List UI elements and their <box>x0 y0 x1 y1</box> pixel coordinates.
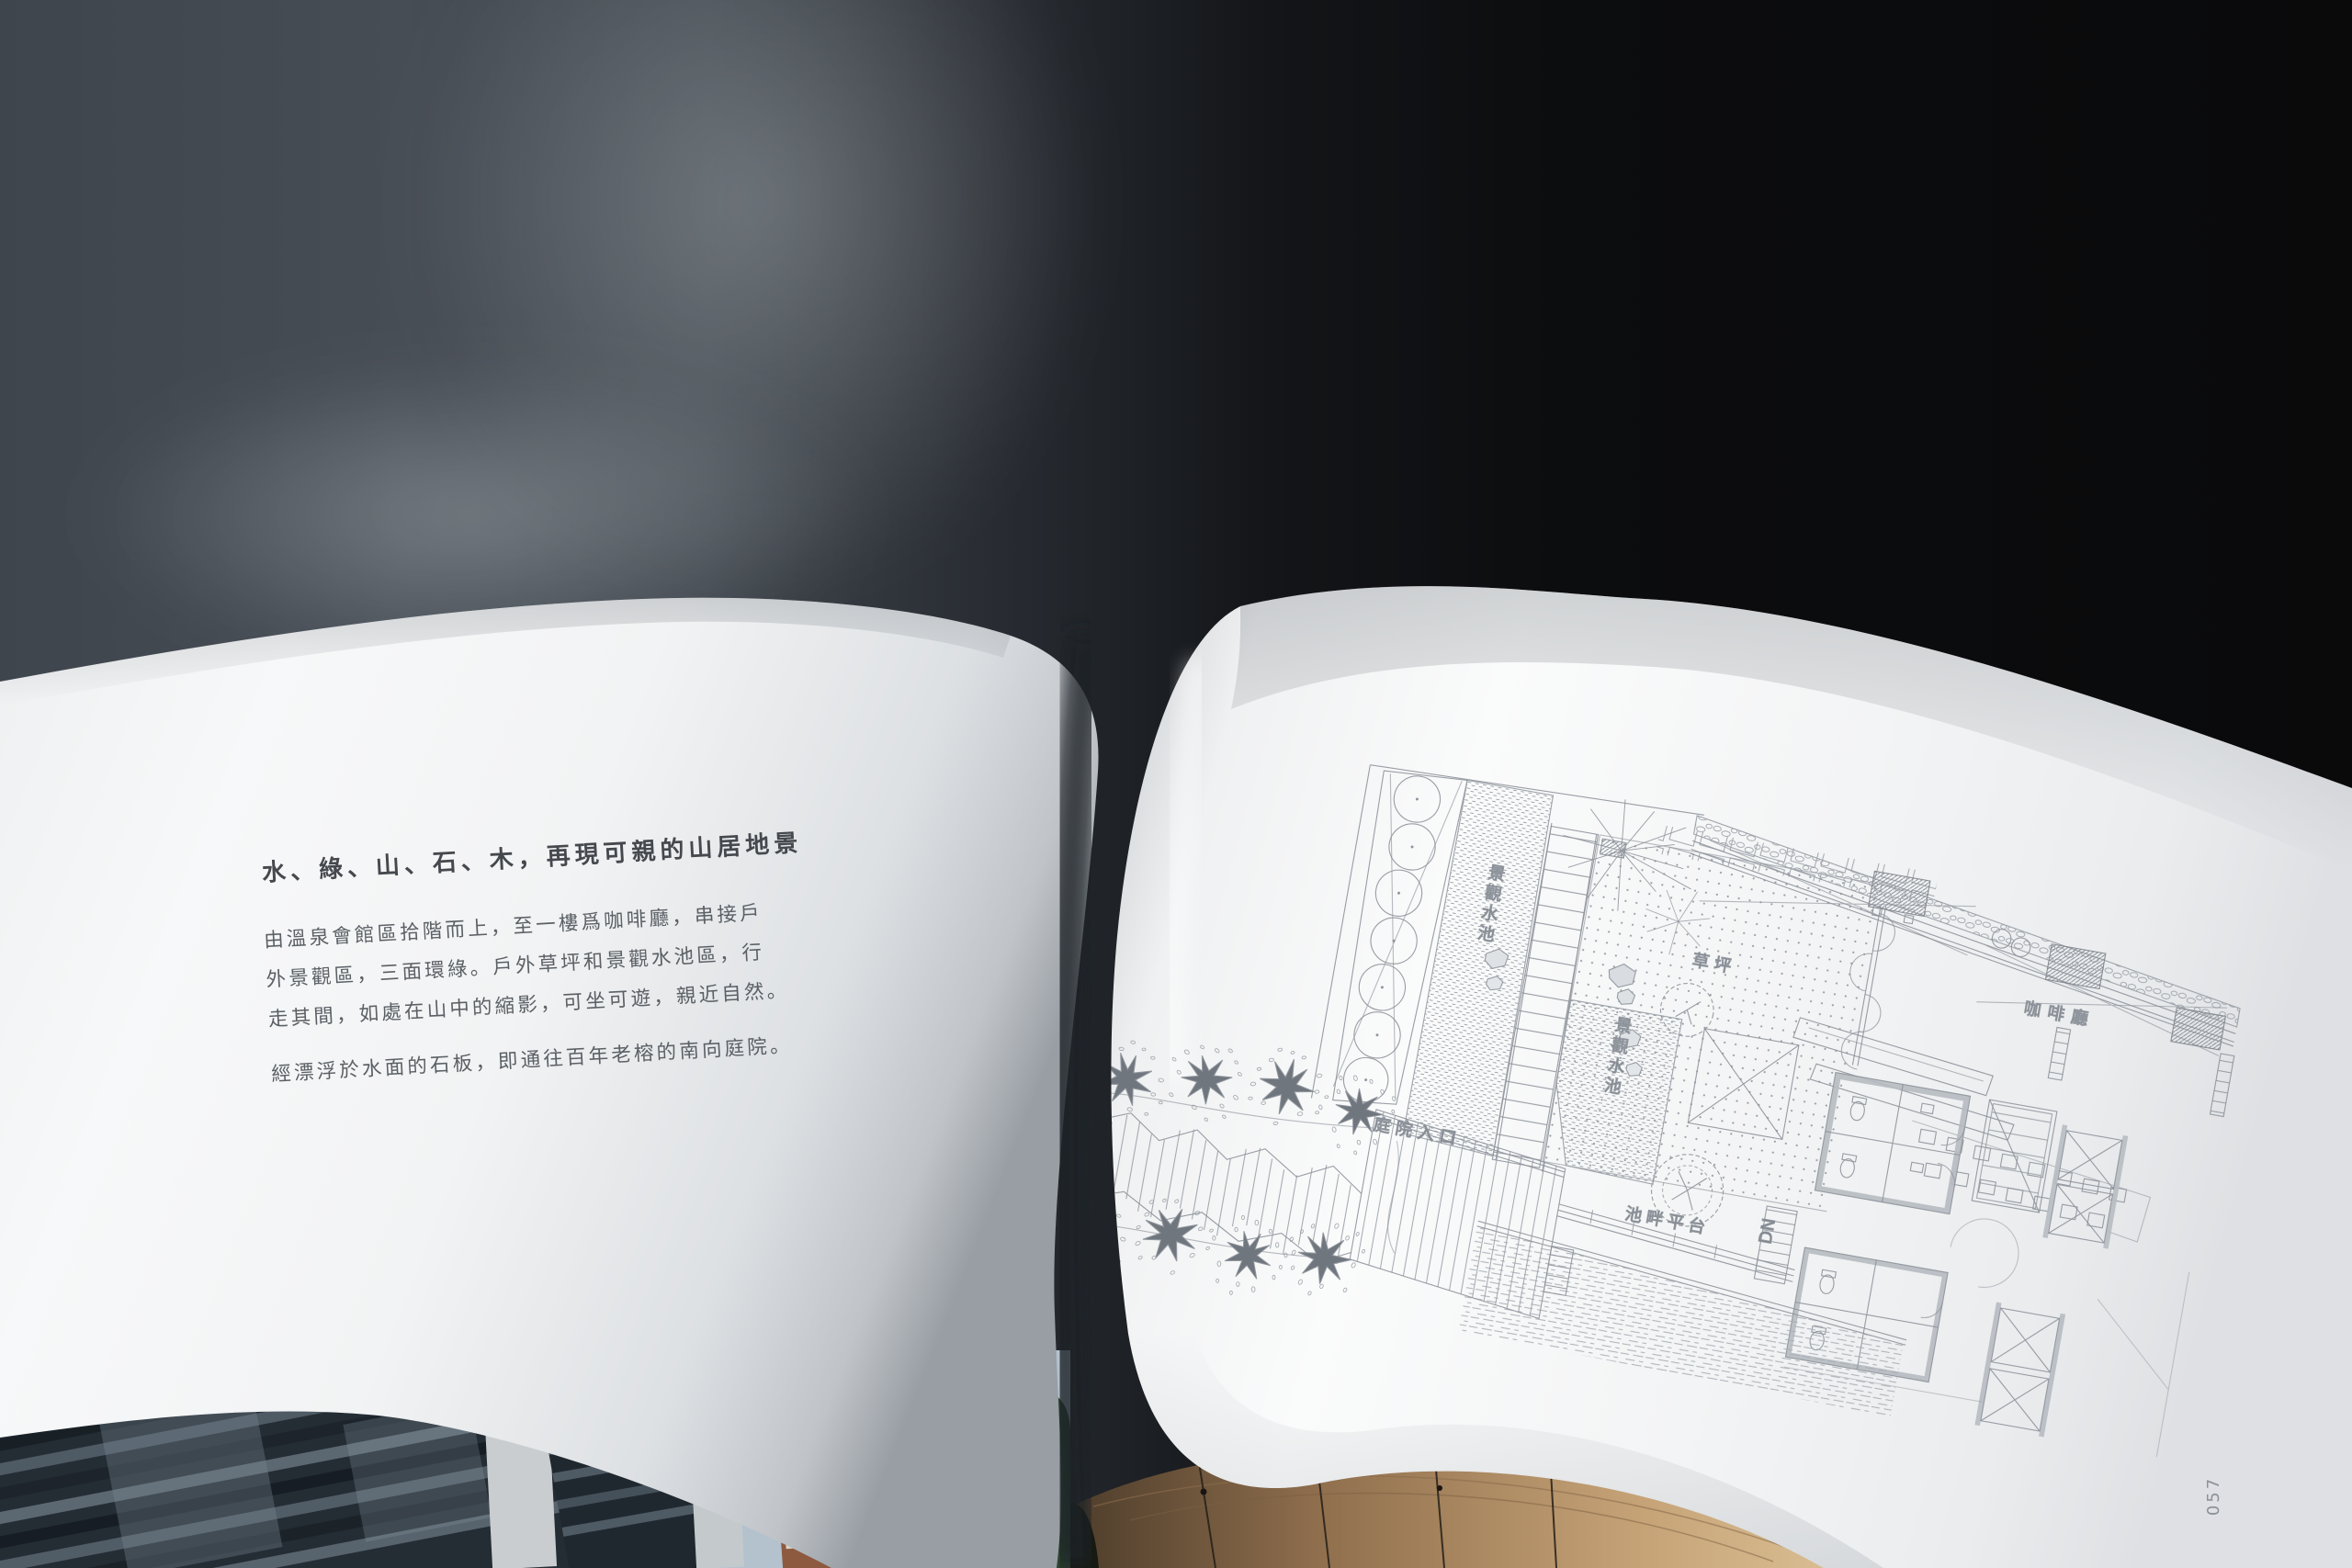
page-number: 057 <box>2204 1476 2223 1516</box>
lamp-dot <box>1201 1489 1207 1495</box>
book-scene: 景觀水池 草坪 咖啡廳 庭院入口 景觀水池 池畔平台 DN <box>0 0 2352 1568</box>
left-page-text: 水、綠、山、石、木，再現可親的山居地景 由溫泉會館區拾階而上，至一樓爲咖啡廳，串… <box>259 824 823 1095</box>
body-paragraph-1: 由溫泉會館區拾階而上，至一樓爲咖啡廳，串接戶 外景觀區，三面環綠。戶外草坪和景觀… <box>263 890 820 1039</box>
open-book-photo: 景觀水池 草坪 咖啡廳 庭院入口 景觀水池 池畔平台 DN 水、綠、山、石、木，… <box>0 0 2352 1568</box>
lamp-dot <box>1437 1485 1442 1491</box>
